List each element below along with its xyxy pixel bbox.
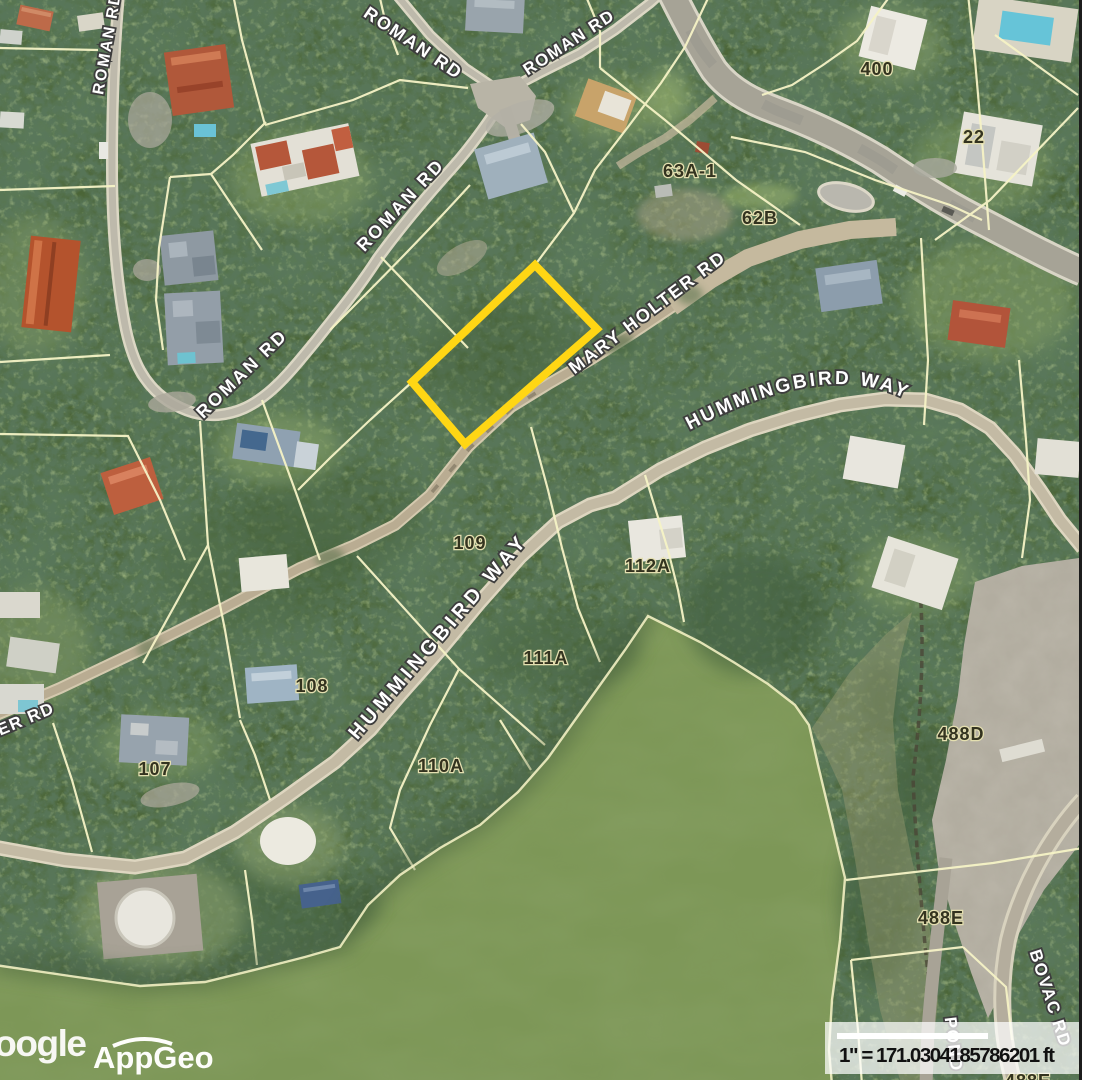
svg-text:111A: 111A [523, 648, 568, 668]
svg-text:62B: 62B [742, 208, 778, 228]
svg-text:488E: 488E [918, 908, 964, 928]
svg-text:488D: 488D [937, 724, 984, 744]
svg-text:110A: 110A [418, 756, 464, 776]
svg-text:107: 107 [138, 759, 171, 779]
svg-text:400: 400 [860, 59, 893, 79]
svg-text:1" = 171.0304185786201 ft: 1" = 171.0304185786201 ft [839, 1044, 1055, 1067]
svg-text:109: 109 [453, 533, 486, 553]
svg-text:108: 108 [295, 676, 328, 696]
svg-text:Google: Google [0, 1023, 86, 1064]
svg-text:22: 22 [963, 127, 985, 147]
svg-text:63A-1: 63A-1 [663, 161, 717, 181]
svg-text:AppGeo: AppGeo [93, 1040, 214, 1075]
svg-text:112A: 112A [625, 556, 671, 576]
